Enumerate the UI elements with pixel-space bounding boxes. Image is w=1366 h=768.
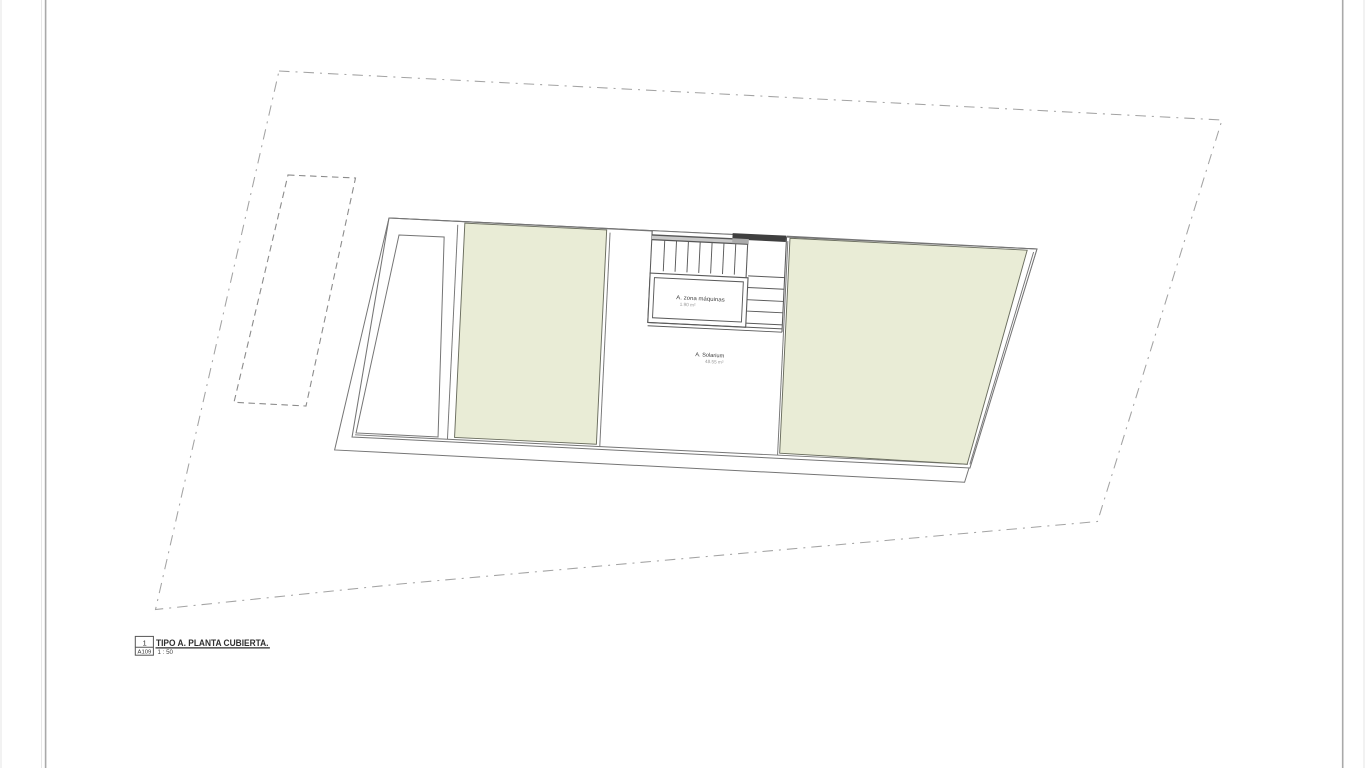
svg-text:1: 1 — [142, 639, 146, 648]
svg-text:1 : 50: 1 : 50 — [158, 649, 174, 656]
svg-text:TIPO A. PLANTA CUBIERTA.: TIPO A. PLANTA CUBIERTA. — [156, 638, 269, 648]
svg-text:1.90 m²: 1.90 m² — [680, 302, 697, 308]
svg-text:48.55 m²: 48.55 m² — [705, 359, 724, 365]
svg-text:A109: A109 — [138, 650, 152, 656]
